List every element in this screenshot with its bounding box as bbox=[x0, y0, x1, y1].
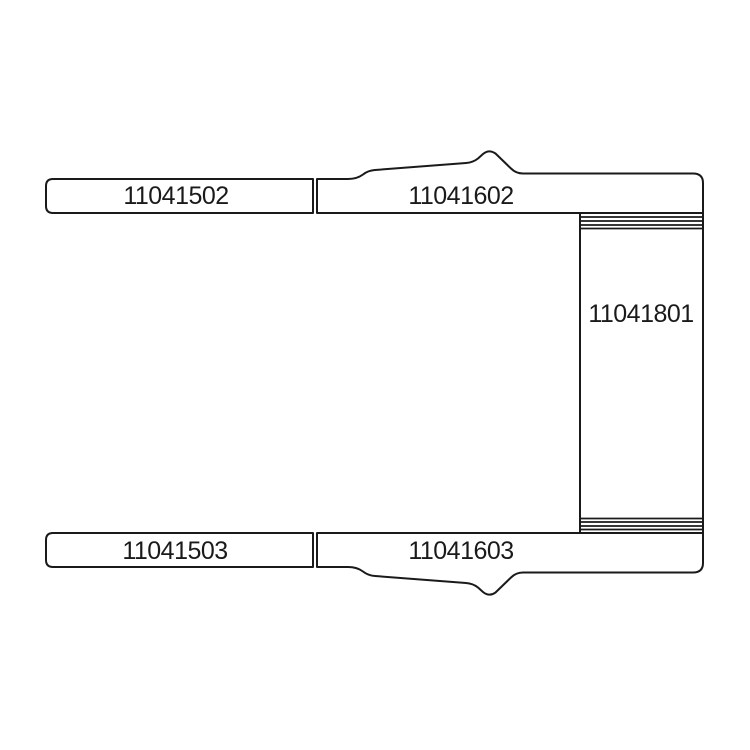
part-number-side-panel: 11041801 bbox=[588, 300, 693, 328]
parts-drawing-canvas: 11041502 11041602 11041801 11041503 1104… bbox=[0, 0, 750, 750]
part-number-bottom-left: 11041503 bbox=[122, 537, 227, 565]
part-number-top-left: 11041502 bbox=[123, 182, 228, 210]
parts-diagram: 11041502 11041602 11041801 11041503 1104… bbox=[0, 0, 750, 750]
part-number-top-right: 11041602 bbox=[408, 182, 513, 210]
part-number-bottom-right: 11041603 bbox=[408, 537, 513, 565]
side-panel-outline bbox=[580, 213, 703, 533]
side-panel-body bbox=[580, 213, 703, 533]
